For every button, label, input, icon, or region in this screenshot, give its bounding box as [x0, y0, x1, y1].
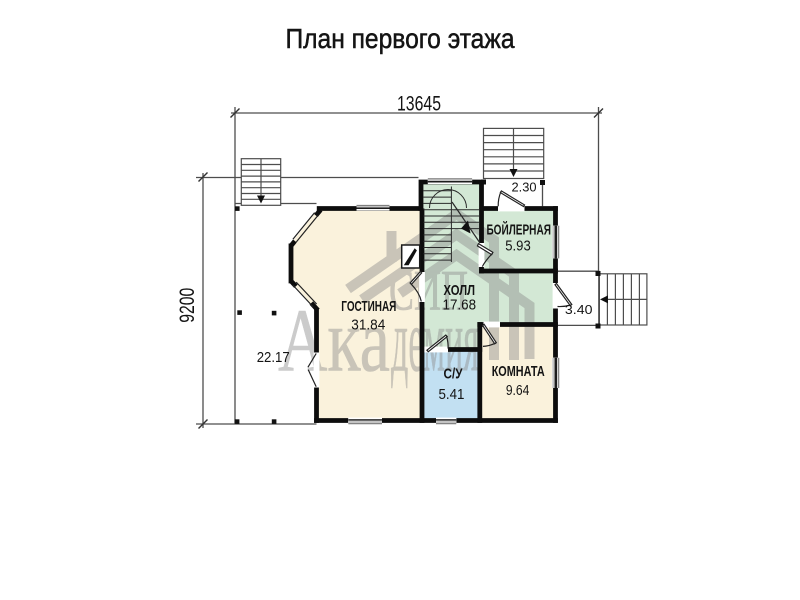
svg-text:План первого этажа: План первого этажа: [286, 23, 515, 54]
svg-text:КОМНАТА: КОМНАТА: [492, 363, 545, 380]
svg-text:31.84: 31.84: [351, 317, 385, 333]
svg-text:5.41: 5.41: [439, 387, 465, 403]
svg-text:9.64: 9.64: [506, 383, 530, 399]
svg-text:БОЙЛЕРНАЯ: БОЙЛЕРНАЯ: [486, 221, 551, 239]
svg-text:13645: 13645: [397, 92, 441, 116]
svg-text:2.30: 2.30: [512, 180, 537, 195]
svg-text:5.93: 5.93: [505, 239, 531, 255]
svg-text:С/У: С/У: [444, 366, 464, 383]
svg-text:3.40: 3.40: [565, 302, 593, 317]
svg-text:17.68: 17.68: [443, 297, 477, 313]
svg-text:ГОСТИНАЯ: ГОСТИНАЯ: [341, 298, 396, 315]
svg-text:9200: 9200: [175, 288, 199, 323]
svg-text:22.17: 22.17: [257, 350, 290, 366]
